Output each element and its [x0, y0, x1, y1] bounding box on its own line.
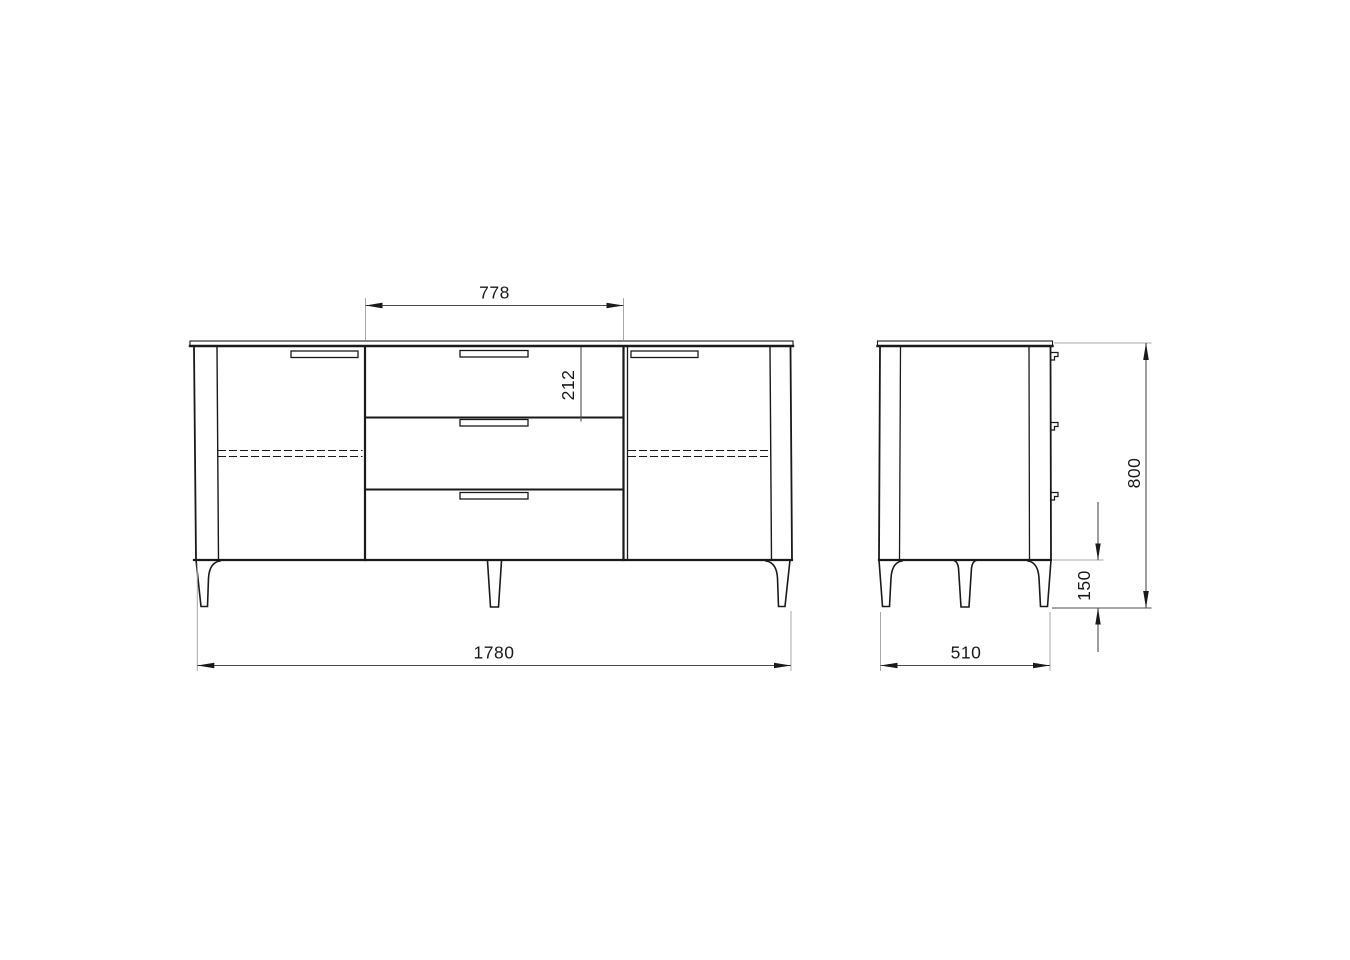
side-dimensions: 800 150 510 [881, 343, 1152, 671]
drawer-2-handle [460, 420, 528, 427]
left-door-handle [291, 351, 358, 358]
front-left-leg [196, 560, 220, 607]
front-center-leg [488, 561, 502, 607]
dim-label-510: 510 [951, 643, 982, 663]
arrow-down [1095, 544, 1100, 561]
side-top-slab [878, 341, 1053, 346]
side-left-inner-edge [900, 347, 901, 560]
drawer-3-handle [460, 493, 528, 500]
side-view [878, 341, 1059, 607]
side-right-outer-edge [1051, 347, 1052, 560]
arrow-left [881, 663, 898, 669]
front-left-inner-edge [217, 347, 219, 560]
side-back-leg [879, 560, 902, 607]
right-door-shelf-hidden-lines [629, 451, 771, 457]
dimension-leg-height: 150 [1053, 502, 1104, 652]
dimension-depth: 510 [881, 612, 1051, 671]
dim-label-778: 778 [479, 283, 510, 303]
side-front-leg [1028, 560, 1051, 607]
drawing-canvas: 778 212 1780 [0, 0, 1350, 960]
dimension-overall-height: 800 [1052, 343, 1152, 608]
side-handle-profile-1 [1051, 353, 1058, 361]
left-door-shelf-hidden-lines [219, 451, 363, 457]
front-top-slab [190, 341, 793, 346]
dimension-drawer-section-width: 778 [366, 283, 624, 341]
arrow-up [1143, 343, 1149, 360]
side-right-inner-edge [1029, 347, 1030, 560]
arrow-up [1095, 608, 1100, 625]
dim-label-150: 150 [1074, 570, 1094, 601]
dim-label-212: 212 [558, 370, 578, 401]
dimension-top-drawer-height: 212 [558, 347, 581, 422]
right-door-handle [631, 351, 698, 358]
front-view [190, 341, 793, 607]
dimension-overall-width: 1780 [197, 563, 791, 671]
arrow-left [197, 663, 214, 669]
front-right-outer-edge [791, 347, 793, 560]
arrow-down [1143, 591, 1149, 608]
technical-drawing: 778 212 1780 [0, 0, 1350, 960]
front-right-inner-edge [770, 347, 772, 560]
side-handle-profile-3 [1051, 493, 1058, 501]
arrow-left [366, 303, 383, 309]
drawer-1-handle [460, 351, 528, 358]
side-handle-profile-2 [1051, 423, 1058, 431]
dim-label-1780: 1780 [474, 643, 515, 663]
front-right-leg [766, 560, 790, 607]
side-center-leg [954, 561, 976, 608]
arrow-right [607, 303, 624, 309]
dim-label-800: 800 [1124, 458, 1144, 489]
side-left-outer-edge [879, 347, 880, 560]
arrow-right [774, 663, 791, 669]
arrow-right [1033, 663, 1050, 669]
front-left-outer-edge [194, 347, 196, 560]
